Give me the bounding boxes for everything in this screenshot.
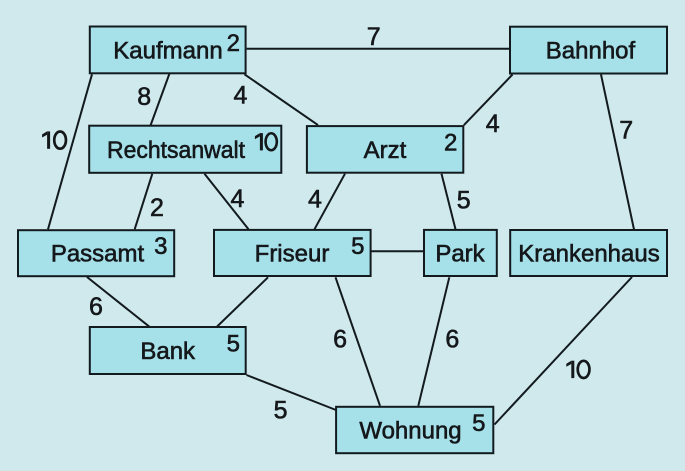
svg-text:5: 5 <box>472 410 485 437</box>
svg-text:7: 7 <box>619 116 633 144</box>
svg-text:2: 2 <box>227 30 240 57</box>
svg-text:4: 4 <box>231 185 245 213</box>
svg-text:Kaufmann: Kaufmann <box>113 37 222 64</box>
svg-text:5: 5 <box>274 397 288 425</box>
svg-text:Wohnung: Wohnung <box>359 417 461 444</box>
svg-text:Friseur: Friseur <box>255 241 330 268</box>
svg-text:Rechtsanwalt: Rechtsanwalt <box>107 137 245 164</box>
svg-text:6: 6 <box>445 326 459 354</box>
svg-text:Arzt: Arzt <box>364 137 407 164</box>
svg-text:7: 7 <box>367 23 381 51</box>
svg-text:4: 4 <box>486 110 500 138</box>
svg-text:4: 4 <box>234 82 248 110</box>
svg-text:Park: Park <box>435 241 485 268</box>
svg-text:6: 6 <box>333 325 347 353</box>
svg-text:Passamt: Passamt <box>51 241 145 268</box>
svg-text:2: 2 <box>444 129 457 156</box>
svg-text:2: 2 <box>150 194 164 222</box>
svg-text:Bahnhof: Bahnhof <box>546 38 636 65</box>
svg-text:5: 5 <box>227 331 240 358</box>
svg-text:6: 6 <box>89 293 103 321</box>
svg-text:4: 4 <box>308 186 322 214</box>
svg-text:5: 5 <box>351 233 364 260</box>
svg-text:Bank: Bank <box>140 338 196 365</box>
svg-text:Krankenhaus: Krankenhaus <box>518 241 659 268</box>
svg-text:3: 3 <box>154 233 167 260</box>
svg-text:8: 8 <box>137 83 151 111</box>
svg-text:5: 5 <box>457 186 471 214</box>
